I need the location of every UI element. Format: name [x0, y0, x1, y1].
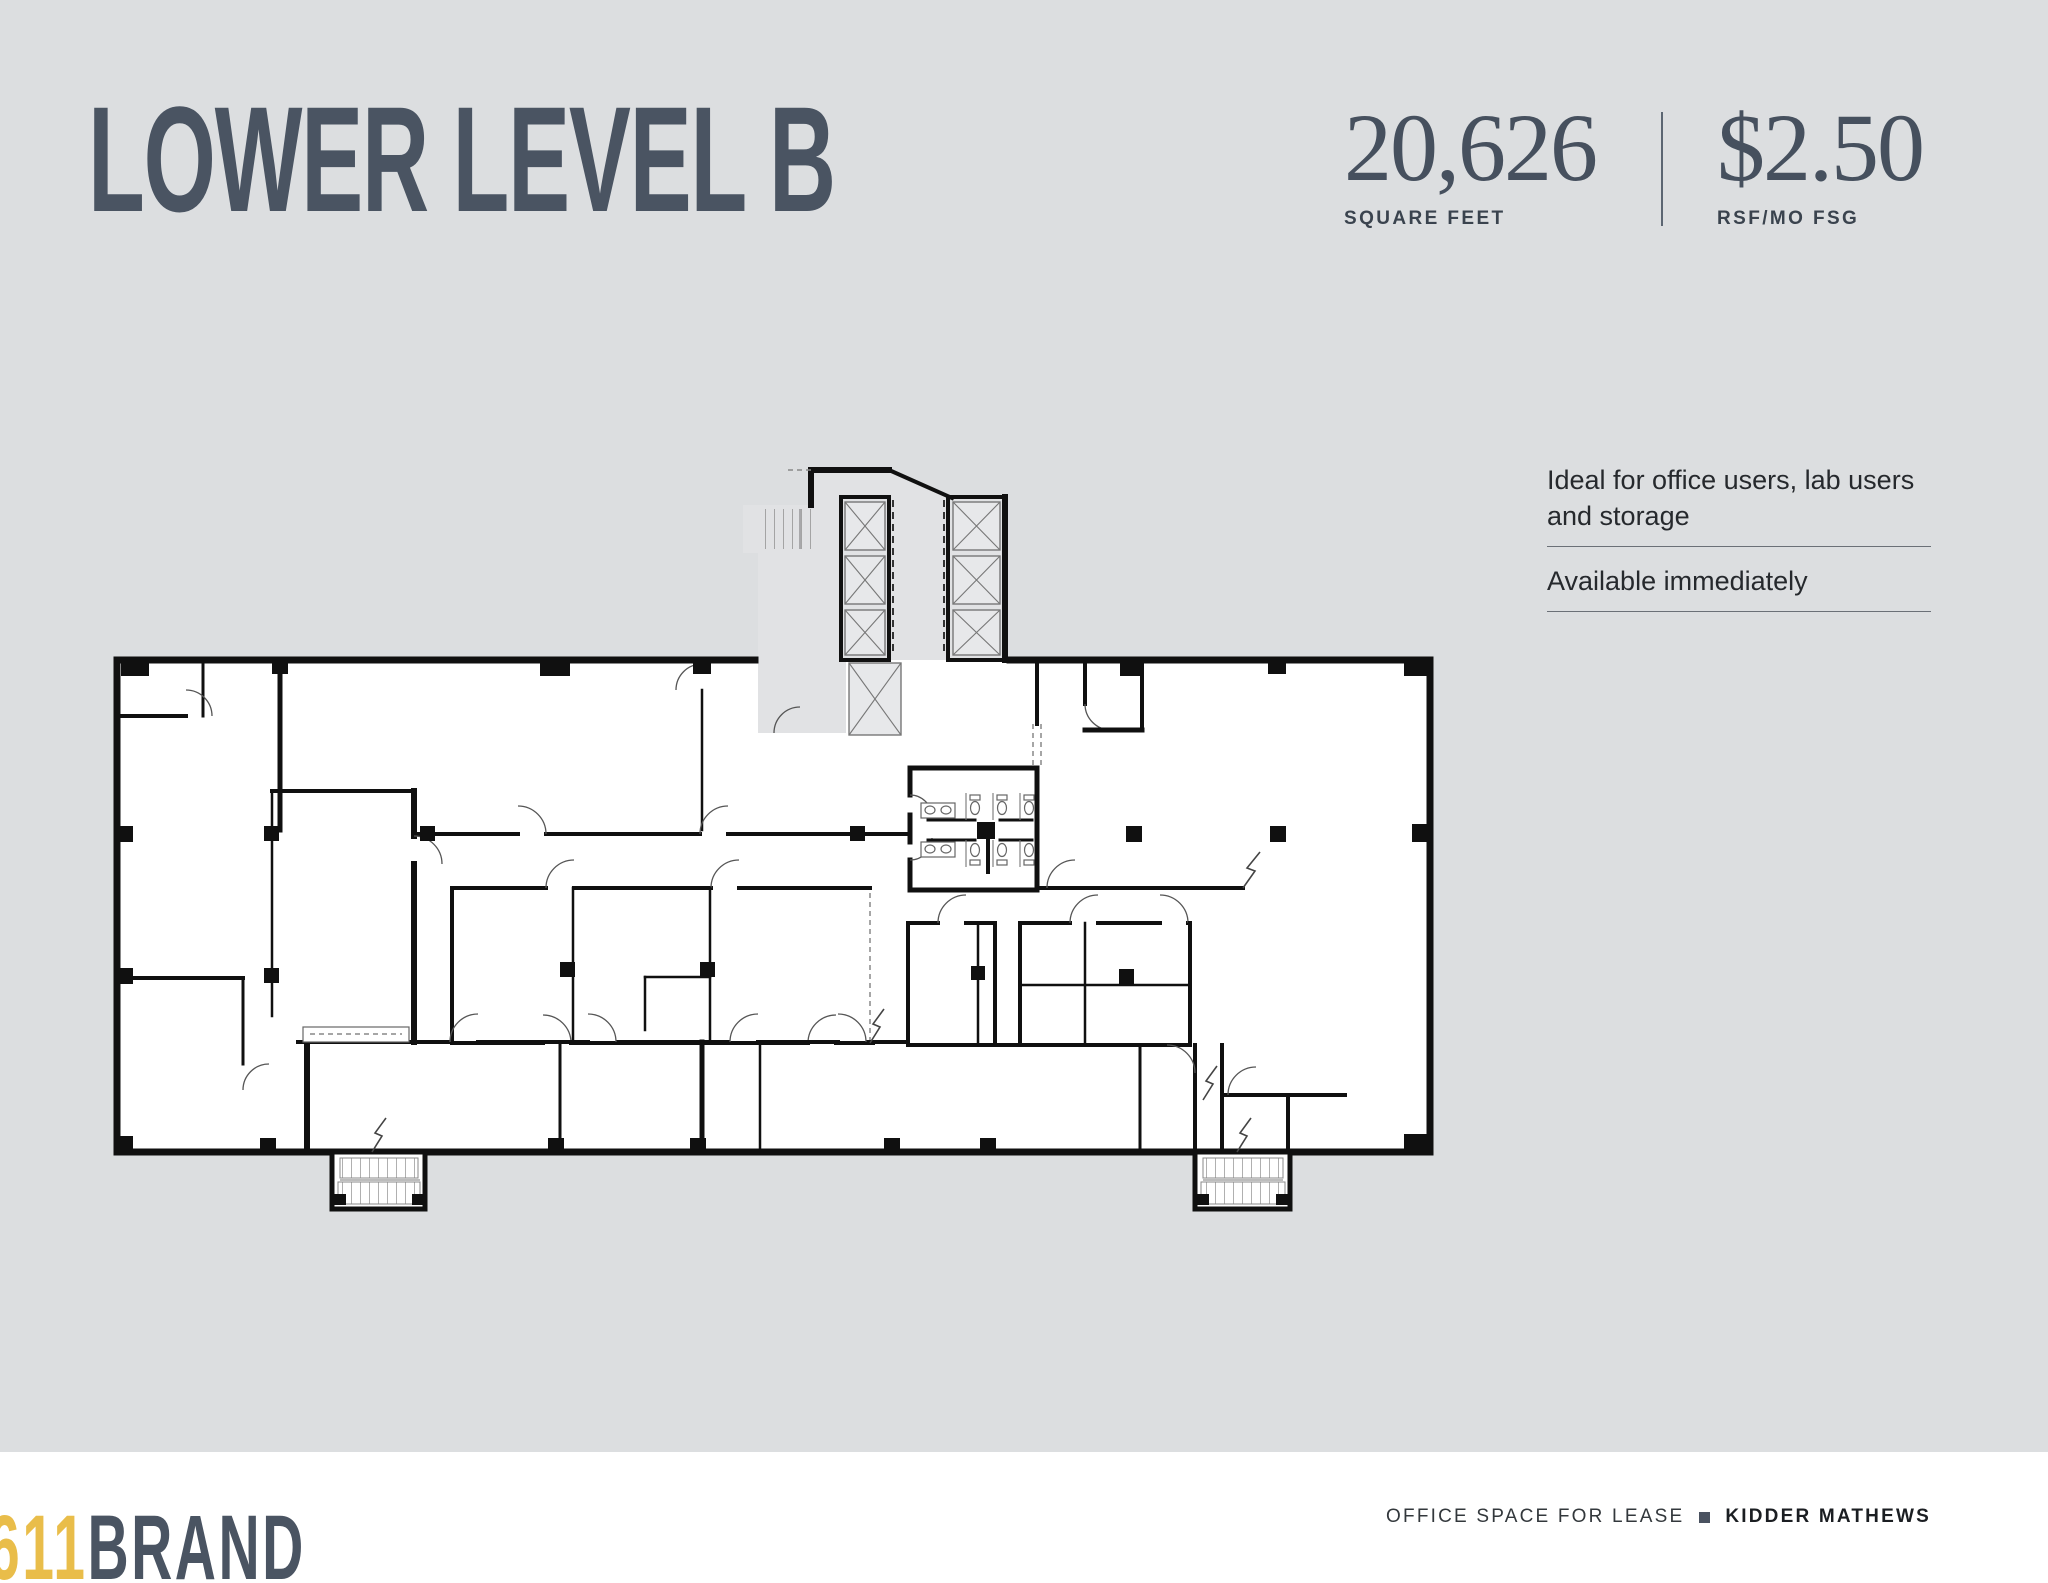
broker-name: KIDDER MATHEWS: [1725, 1506, 1931, 1528]
square-feet-label: SQUARE FEET: [1344, 208, 1596, 230]
detail-line: Available immediately: [1547, 563, 1931, 599]
page-title: LOWER LEVEL B: [88, 84, 835, 234]
logo-brand: BRAND: [87, 1497, 305, 1583]
square-bullet-icon: [1699, 1512, 1710, 1523]
detail-item-availability: Available immediately: [1547, 547, 1931, 612]
logo-number: 611: [0, 1497, 87, 1583]
square-feet-value: 20,626: [1344, 100, 1596, 196]
stat-divider: [1661, 112, 1663, 226]
rate-label: RSF/MO FSG: [1717, 208, 1923, 230]
flyer-page: LOWER LEVEL B 20,626 SQUARE FEET $2.50 R…: [0, 0, 2048, 1583]
property-details: Ideal for office users, lab users and st…: [1547, 462, 1931, 612]
stat-square-feet: 20,626 SQUARE FEET: [1344, 100, 1596, 230]
detail-line: Ideal for office users, lab users: [1547, 462, 1931, 498]
lease-text: OFFICE SPACE FOR LEASE: [1386, 1506, 1684, 1528]
building-logo: 611BRAND: [0, 1502, 306, 1583]
rate-value: $2.50: [1717, 100, 1923, 196]
detail-item-uses: Ideal for office users, lab users and st…: [1547, 462, 1931, 547]
stat-rate: $2.50 RSF/MO FSG: [1717, 100, 1923, 230]
detail-line: and storage: [1547, 498, 1931, 534]
footer-credits: OFFICE SPACE FOR LEASE KIDDER MATHEWS: [1386, 1506, 1931, 1528]
